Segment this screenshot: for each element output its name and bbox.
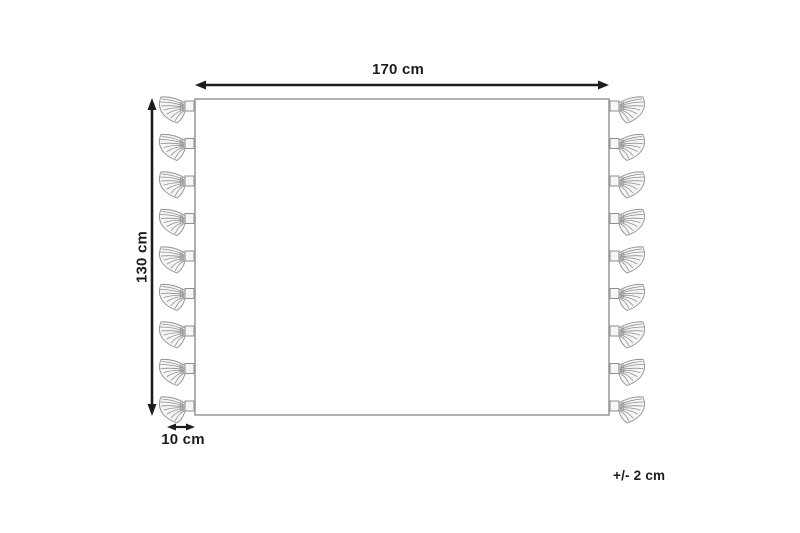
tassel: [610, 97, 645, 123]
fringe-dimension-arrow: [167, 424, 195, 431]
rug-dimension-diagram: 170 cm 130 cm 10 cm +/- 2 cm: [0, 0, 800, 533]
tassel: [610, 247, 645, 273]
tassel: [159, 247, 194, 273]
tassel-column-right: [610, 97, 645, 423]
rug-drawing: [0, 0, 800, 533]
tassel: [159, 172, 194, 198]
tassel: [610, 397, 645, 423]
tassel: [610, 134, 645, 160]
tassel: [610, 172, 645, 198]
width-dimension-arrow: [195, 81, 609, 90]
tassel: [159, 134, 194, 160]
fringe-dimension-label: 10 cm: [142, 431, 224, 448]
tassel: [159, 284, 194, 310]
tassel: [610, 359, 645, 385]
tassel: [159, 322, 194, 348]
tassel: [159, 397, 194, 423]
tassel: [159, 359, 194, 385]
tassel: [159, 209, 194, 235]
tassel-column-left: [159, 97, 194, 423]
tassel: [610, 322, 645, 348]
rug-outline: [195, 99, 609, 415]
height-dimension-label: 130 cm: [134, 231, 151, 283]
tassel: [610, 284, 645, 310]
width-dimension-label: 170 cm: [338, 61, 458, 78]
tolerance-label: +/- 2 cm: [613, 468, 665, 483]
tassel: [159, 97, 194, 123]
tassel: [610, 209, 645, 235]
